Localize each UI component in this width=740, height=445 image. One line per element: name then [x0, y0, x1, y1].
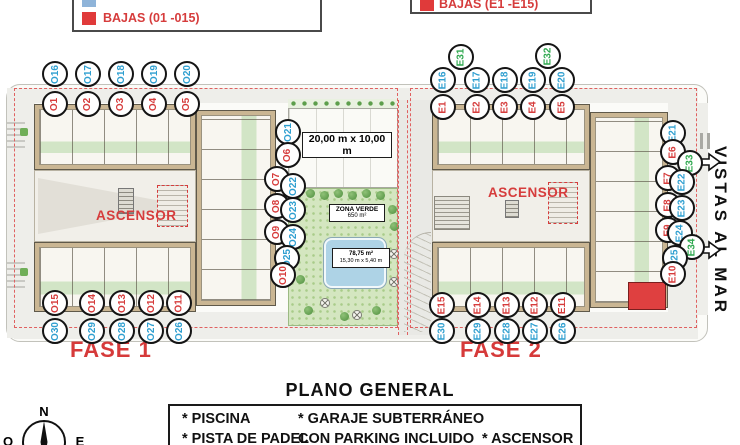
unit-badge-O14: O14 [79, 290, 105, 316]
unit-badge-text: E26 [557, 322, 568, 340]
unit-badge-E16: E16 [430, 67, 456, 93]
pool-area-text: 78,75 m² [349, 251, 373, 258]
unit-badge-O6: O6 [275, 142, 301, 168]
fase1-title: FASE 1 [70, 337, 152, 363]
pool-dimensions-text: 15,30 m x 5,40 m [340, 258, 383, 264]
unit-badge-text: O22 [288, 177, 299, 196]
unit-badge-E19: E19 [520, 67, 546, 93]
unit-badge-text: E11 [558, 296, 569, 313]
amenities-box: * PISCINA * PISTA DE PADEL * GARAJE SUBT… [168, 404, 582, 445]
unit-badge-text: O29 [87, 322, 98, 341]
compass-w: O [3, 434, 13, 445]
unit-badge-text: O28 [117, 322, 128, 341]
padel-dimensions-text: 20,00 m x 10,00 m [303, 133, 391, 157]
unit-badge-O29: O29 [79, 318, 105, 344]
unit-badge-E2: E2 [464, 94, 490, 120]
unit-badge-text: E3 [499, 101, 510, 113]
unit-badge-O3: O3 [108, 91, 134, 117]
site-plan: BAJAS (01 -015) BAJAS (E1 -E15) ASCENSOR… [0, 0, 740, 445]
fase1-ascensor-label: ASCENSOR [96, 208, 177, 223]
unit-badge-text: E17 [471, 71, 482, 89]
compass-n: N [39, 404, 48, 419]
unit-badge-O13: O13 [109, 290, 135, 316]
unit-badge-text: O13 [117, 294, 128, 313]
unit-badge-text: E29 [472, 322, 483, 340]
unit-badge-text: E30 [436, 322, 447, 340]
unit-badge-O18: O18 [108, 61, 134, 87]
unit-badge-text: O23 [288, 201, 299, 220]
unit-badge-O15: O15 [42, 290, 68, 316]
unit-badge-text: O16 [50, 65, 61, 84]
unit-badge-O4: O4 [141, 91, 167, 117]
unit-badge-E3: E3 [492, 94, 518, 120]
unit-badge-text: E13 [501, 296, 512, 314]
unit-badge-O2: O2 [75, 91, 101, 117]
unit-badge-E5: E5 [549, 94, 575, 120]
unit-badge-E15: E15 [429, 292, 455, 318]
unit-badge-O10: O10 [270, 262, 296, 288]
unit-badge-text: O12 [146, 294, 157, 313]
unit-badge-text: O19 [149, 65, 160, 84]
padel-dimensions-label: 20,00 m x 10,00 m [302, 132, 392, 158]
amenity-padel: * PISTA DE PADEL [182, 431, 309, 445]
legend-bajas-swatch [82, 12, 96, 25]
compass-e: E [76, 434, 85, 445]
unit-badge-text: O6 [283, 148, 294, 161]
unit-badge-O17: O17 [75, 61, 101, 87]
zona-verde-label: ZONA VERDE 650 m² [329, 204, 385, 222]
unit-badge-O26: O26 [166, 318, 192, 344]
unit-badge-E26: E26 [550, 318, 576, 344]
unit-badge-O28: O28 [109, 318, 135, 344]
unit-badge-text: E1 [437, 101, 448, 113]
unit-badge-text: O14 [87, 294, 98, 313]
unit-badge-text: E2 [471, 101, 482, 113]
unit-badge-text: E32 [542, 47, 553, 65]
unit-badge-E13: E13 [494, 292, 520, 318]
unit-badge-text: E12 [529, 296, 540, 314]
unit-badge-text: O3 [116, 97, 127, 110]
unit-badge-text: O27 [146, 322, 157, 341]
unit-badge-text: E31 [455, 48, 466, 66]
unit-badge-text: O1 [50, 97, 61, 110]
unit-badge-text: O4 [149, 97, 160, 110]
legend-bajas-e-swatch [420, 0, 434, 11]
unit-badge-text: O17 [83, 65, 94, 84]
unit-badge-E17: E17 [464, 67, 490, 93]
unit-badge-O5: O5 [174, 91, 200, 117]
compass-icon: N O E [0, 398, 88, 445]
unit-badge-O1: O1 [42, 91, 68, 117]
unit-badge-text: E16 [437, 71, 448, 89]
unit-badge-E20: E20 [549, 67, 575, 93]
unit-badge-E12: E12 [522, 292, 548, 318]
unit-badge-text: O18 [116, 65, 127, 84]
zona-verde-area: 650 m² [348, 213, 367, 220]
amenity-piscina: * PISCINA [182, 411, 251, 427]
legend-altas-swatch [82, 0, 96, 7]
amenity-ascensor: * ASCENSOR [482, 431, 573, 445]
amenity-garaje: * GARAJE SUBTERRÁNEO [298, 411, 484, 427]
unit-badge-text: O30 [50, 322, 61, 341]
unit-badge-O27: O27 [138, 318, 164, 344]
unit-badge-O30: O30 [42, 318, 68, 344]
vistas-al-mar: VISTAS AL MAR [710, 146, 730, 320]
unit-badge-text: O10 [278, 266, 289, 285]
unit-badge-O11: O11 [166, 290, 192, 316]
unit-badge-text: E34 [686, 238, 697, 256]
unit-badge-O12: O12 [138, 290, 164, 316]
unit-badge-text: O15 [50, 294, 61, 313]
zona-verde-text: ZONA VERDE [336, 206, 378, 213]
legend-fase1-box: BAJAS (01 -015) [72, 0, 322, 32]
unit-badge-text: E15 [436, 296, 447, 314]
unit-badge-E22: E22 [669, 169, 695, 195]
unit-badge-E30: E30 [429, 318, 455, 344]
unit-badge-text: E22 [676, 173, 687, 191]
unit-badge-text: E19 [527, 71, 538, 89]
unit-badge-E27: E27 [522, 318, 548, 344]
pool-label: 78,75 m² 15,30 m x 5,40 m [332, 248, 390, 268]
unit-badge-E14: E14 [465, 292, 491, 318]
unit-badge-text: E20 [556, 71, 567, 89]
unit-badge-E32: E32 [535, 43, 561, 69]
unit-badge-text: O21 [283, 123, 294, 142]
unit-badge-E11: E11 [550, 292, 576, 318]
legend-fase2-box: BAJAS (E1 -E15) [410, 0, 592, 14]
unit-badge-O23: O23 [280, 197, 306, 223]
amenity-parking: CON PARKING INCLUIDO [298, 431, 474, 445]
unit-badge-E1: E1 [430, 94, 456, 120]
unit-badge-E18: E18 [492, 67, 518, 93]
unit-badge-text: O20 [182, 65, 193, 84]
legend-bajas-label: BAJAS (01 -015) [103, 11, 200, 25]
unit-badge-text: O5 [182, 97, 193, 110]
unit-badge-text: E4 [527, 101, 538, 113]
unit-badge-text: O2 [83, 97, 94, 110]
unit-badge-text: E23 [676, 199, 687, 217]
fase2-ascensor-label: ASCENSOR [488, 185, 569, 200]
unit-badge-E4: E4 [520, 94, 546, 120]
unit-badge-E28: E28 [494, 318, 520, 344]
unit-badge-O19: O19 [141, 61, 167, 87]
unit-badge-E31: E31 [448, 44, 474, 70]
legend-bajas-e-label: BAJAS (E1 -E15) [439, 0, 538, 11]
unit-badge-text: O26 [174, 322, 185, 341]
unit-badge-text: E6 [667, 146, 678, 158]
unit-badge-O16: O16 [42, 61, 68, 87]
unit-badge-E10: E10 [660, 261, 686, 287]
unit-badge-text: O11 [173, 294, 184, 312]
page-title: PLANO GENERAL [160, 380, 580, 401]
unit-badge-text: E28 [501, 322, 512, 340]
unit-badge-text: E27 [529, 322, 540, 340]
unit-badge-text: E10 [667, 265, 678, 283]
unit-badge-text: E14 [472, 296, 483, 314]
unit-badge-text: O24 [288, 228, 299, 247]
unit-badge-E29: E29 [465, 318, 491, 344]
unit-badge-text: E18 [499, 71, 510, 89]
unit-badge-O20: O20 [174, 61, 200, 87]
unit-badge-text: E5 [556, 101, 567, 113]
